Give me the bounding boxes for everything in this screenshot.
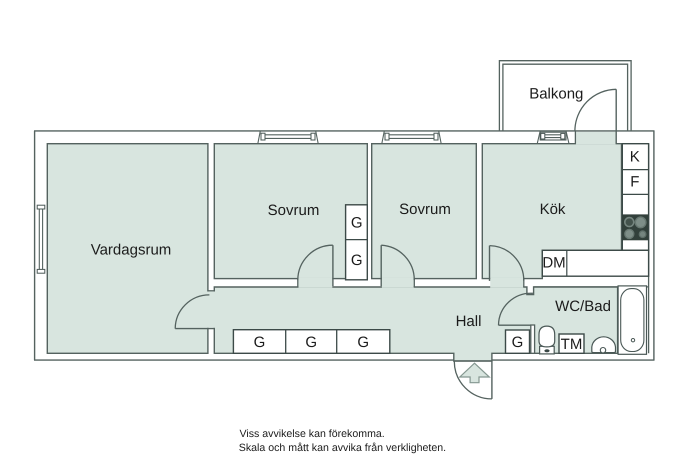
svg-text:K: K — [630, 149, 640, 166]
svg-text:WC/Bad: WC/Bad — [555, 298, 611, 315]
svg-text:Skala och mått kan avvika från: Skala och mått kan avvika från verklighe… — [239, 442, 446, 454]
svg-text:TM: TM — [561, 336, 583, 353]
svg-text:DM: DM — [542, 255, 565, 272]
svg-text:Hall: Hall — [456, 313, 482, 330]
svg-text:G: G — [351, 214, 363, 231]
svg-text:Balkong: Balkong — [529, 85, 583, 102]
svg-text:Viss avvikelse kan förekomma.: Viss avvikelse kan förekomma. — [240, 428, 385, 440]
svg-text:Vardagsrum: Vardagsrum — [91, 241, 172, 258]
svg-text:Sovrum: Sovrum — [268, 202, 320, 219]
svg-text:G: G — [254, 334, 266, 351]
svg-text:F: F — [630, 174, 639, 191]
svg-text:Sovrum: Sovrum — [399, 201, 451, 218]
svg-text:G: G — [512, 334, 524, 351]
svg-text:G: G — [351, 252, 363, 269]
svg-text:G: G — [305, 334, 317, 351]
svg-text:Kök: Kök — [540, 201, 566, 218]
svg-text:G: G — [357, 334, 369, 351]
